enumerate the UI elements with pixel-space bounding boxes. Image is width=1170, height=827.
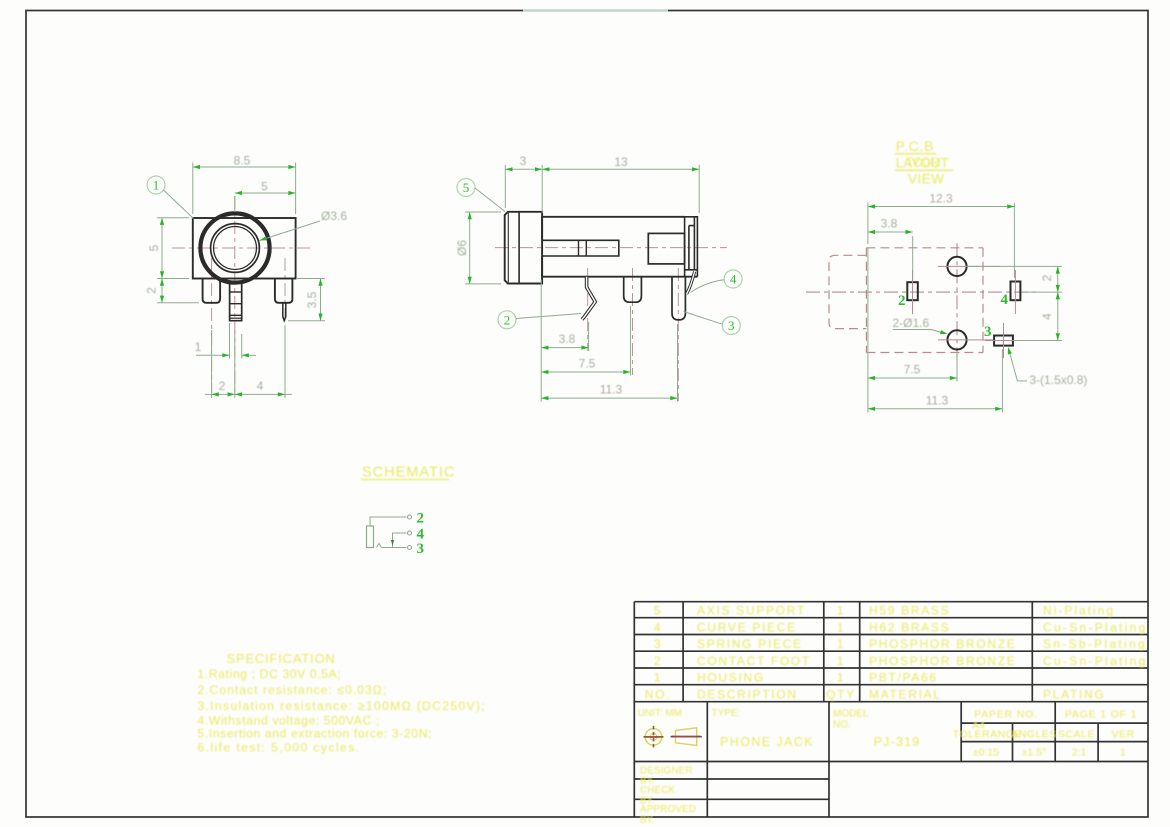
svg-text:5.Insertion and extraction for: 5.Insertion and extraction force: 3-20N; xyxy=(197,726,432,740)
svg-text:2: 2 xyxy=(898,293,906,309)
svg-text:1: 1 xyxy=(1120,747,1126,759)
svg-text:SPRING PIECE: SPRING PIECE xyxy=(697,637,803,651)
svg-text:3: 3 xyxy=(728,318,735,333)
svg-text:Cu-Sn-Plating: Cu-Sn-Plating xyxy=(1043,654,1148,668)
svg-text:Ni-Plating: Ni-Plating xyxy=(1043,604,1115,618)
svg-text:2: 2 xyxy=(654,654,662,668)
svg-text:2: 2 xyxy=(417,511,425,527)
svg-text:4: 4 xyxy=(1001,292,1009,308)
svg-text:VER: VER xyxy=(1111,729,1134,741)
svg-text:H59 BRASS: H59 BRASS xyxy=(869,604,950,618)
svg-text:1: 1 xyxy=(195,340,202,354)
svg-text:SCHEMATIC: SCHEMATIC xyxy=(362,465,455,481)
svg-text:5: 5 xyxy=(654,604,662,618)
svg-text:AXIS SUPPORT: AXIS SUPPORT xyxy=(697,604,806,618)
svg-text:P.C.B: P.C.B xyxy=(896,139,935,154)
svg-text:MODEL: MODEL xyxy=(833,709,869,720)
svg-text:11.3: 11.3 xyxy=(926,393,949,407)
svg-text:12.3: 12.3 xyxy=(929,192,953,206)
svg-text:2-Ø1.6: 2-Ø1.6 xyxy=(893,316,930,330)
svg-text:3: 3 xyxy=(984,324,992,340)
svg-text:7.5: 7.5 xyxy=(579,357,596,371)
svg-text:4.Withstand voltage: 500VAC ;: 4.Withstand voltage: 500VAC ; xyxy=(197,713,379,727)
svg-text:11.3: 11.3 xyxy=(600,383,623,397)
svg-text:±1.5°: ±1.5° xyxy=(1022,747,1047,759)
svg-text:1: 1 xyxy=(837,671,845,685)
svg-text:QTY: QTY xyxy=(826,687,856,701)
svg-text:1: 1 xyxy=(837,620,845,634)
svg-text:3: 3 xyxy=(417,541,425,557)
svg-text:ANGLES: ANGLES xyxy=(1011,729,1057,741)
svg-text:DESCRIPTION: DESCRIPTION xyxy=(697,687,798,701)
svg-text:PHOSPHOR BRONZE: PHOSPHOR BRONZE xyxy=(869,654,1017,668)
svg-text:PJ-319: PJ-319 xyxy=(874,735,921,749)
svg-text:PAGE 1 OF 1: PAGE 1 OF 1 xyxy=(1065,709,1137,721)
svg-text:PLATING: PLATING xyxy=(1043,687,1105,701)
svg-text:2: 2 xyxy=(504,312,511,327)
svg-text:3: 3 xyxy=(520,154,527,168)
svg-text:1: 1 xyxy=(153,178,160,193)
svg-text:Cu-Sn-Plating: Cu-Sn-Plating xyxy=(1043,620,1148,634)
svg-text:±0.15: ±0.15 xyxy=(973,747,999,759)
svg-text:PHOSPHOR BRONZE: PHOSPHOR BRONZE xyxy=(869,637,1017,651)
svg-text:1: 1 xyxy=(837,637,845,651)
svg-text:3.8: 3.8 xyxy=(881,217,898,231)
svg-text:NO.: NO. xyxy=(645,687,671,701)
svg-text:2: 2 xyxy=(145,287,159,294)
svg-text:VIEW: VIEW xyxy=(908,172,945,187)
svg-text:8.5: 8.5 xyxy=(234,154,251,168)
svg-text:APPROVED: APPROVED xyxy=(640,804,696,815)
svg-text:3.5: 3.5 xyxy=(305,291,319,308)
svg-text:TO0R: TO0R xyxy=(905,155,939,170)
svg-text:2.Contact resistance: ≤0.03Ω;: 2.Contact resistance: ≤0.03Ω; xyxy=(197,683,387,697)
svg-text:UNIT: MM: UNIT: MM xyxy=(638,708,682,719)
svg-text:2: 2 xyxy=(1040,274,1054,281)
svg-text:CONTACT FOOT: CONTACT FOOT xyxy=(697,654,811,668)
svg-text:3: 3 xyxy=(654,637,662,651)
svg-text:TYPE:: TYPE: xyxy=(712,708,741,719)
svg-text:PBT/PA66: PBT/PA66 xyxy=(869,671,938,685)
svg-text:Ø3.6: Ø3.6 xyxy=(321,209,347,223)
svg-text:SCALE: SCALE xyxy=(1058,729,1095,741)
svg-text:HOUSING: HOUSING xyxy=(697,671,765,685)
svg-text:Sn-Sb-Plating: Sn-Sb-Plating xyxy=(1043,637,1147,651)
svg-text:1: 1 xyxy=(837,604,845,618)
svg-text:BY.: BY. xyxy=(640,815,655,826)
svg-text:5: 5 xyxy=(147,244,161,251)
svg-text:SPECIFICATION: SPECIFICATION xyxy=(227,651,336,666)
svg-text:CURVE PIECE: CURVE PIECE xyxy=(697,620,797,634)
svg-text:MATERIAL: MATERIAL xyxy=(869,687,942,701)
svg-text:5: 5 xyxy=(261,180,268,194)
svg-text:13: 13 xyxy=(614,155,628,169)
svg-text:4: 4 xyxy=(654,620,662,634)
svg-text:4: 4 xyxy=(257,379,264,393)
svg-text:7.5: 7.5 xyxy=(904,363,921,377)
svg-text:2:1: 2:1 xyxy=(1072,747,1087,759)
svg-text:3.8: 3.8 xyxy=(559,332,576,346)
svg-text:2: 2 xyxy=(219,379,226,393)
svg-text:3.Insulation resistance: ≥100M: 3.Insulation resistance: ≥100MΩ (DC250V)… xyxy=(197,699,486,713)
svg-text:1: 1 xyxy=(654,671,662,685)
svg-text:6.life test: 5,000 cycles.: 6.life test: 5,000 cycles. xyxy=(197,740,360,754)
svg-text:PHONE JACK: PHONE JACK xyxy=(720,735,814,749)
svg-text:CHECK: CHECK xyxy=(640,785,676,796)
svg-text:1.Rating ; DC 30V 0.5A;: 1.Rating ; DC 30V 0.5A; xyxy=(197,667,341,681)
svg-text:5: 5 xyxy=(463,180,470,195)
svg-text:4: 4 xyxy=(730,272,737,287)
svg-text:Ø6: Ø6 xyxy=(455,240,469,256)
svg-text:3-(1.5x0.8): 3-(1.5x0.8) xyxy=(1029,373,1087,387)
svg-text:1: 1 xyxy=(837,654,845,668)
svg-text:H62 BRASS: H62 BRASS xyxy=(869,620,950,634)
svg-text:4: 4 xyxy=(1040,313,1054,320)
svg-text:NO.: NO. xyxy=(833,720,851,731)
